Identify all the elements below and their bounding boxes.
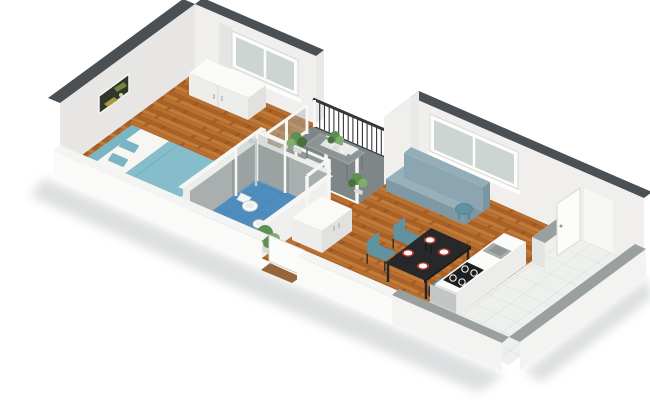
bidet-basin <box>255 221 262 226</box>
place-setting <box>402 249 414 257</box>
plate-white <box>426 238 434 243</box>
plant-foliage <box>287 139 296 148</box>
plant-foliage <box>297 137 307 147</box>
stool-top <box>456 204 473 215</box>
sofa-back-end <box>483 182 490 212</box>
place-setting <box>438 248 450 256</box>
floor-plan-svg <box>0 0 650 420</box>
toilet-seat <box>245 202 255 208</box>
plant-foliage <box>348 179 356 187</box>
place-setting <box>417 262 429 270</box>
plant-foliage <box>328 137 335 144</box>
plate-white <box>440 250 448 255</box>
place-setting <box>424 236 436 244</box>
picture-art-dot <box>119 93 123 97</box>
plate-white <box>419 264 427 269</box>
floor-plan-stage <box>0 0 650 420</box>
plant-foliage <box>336 136 344 144</box>
plate-white <box>404 251 412 256</box>
plant-foliage <box>359 179 368 188</box>
shower-head <box>248 138 253 143</box>
door-handle <box>560 225 563 228</box>
